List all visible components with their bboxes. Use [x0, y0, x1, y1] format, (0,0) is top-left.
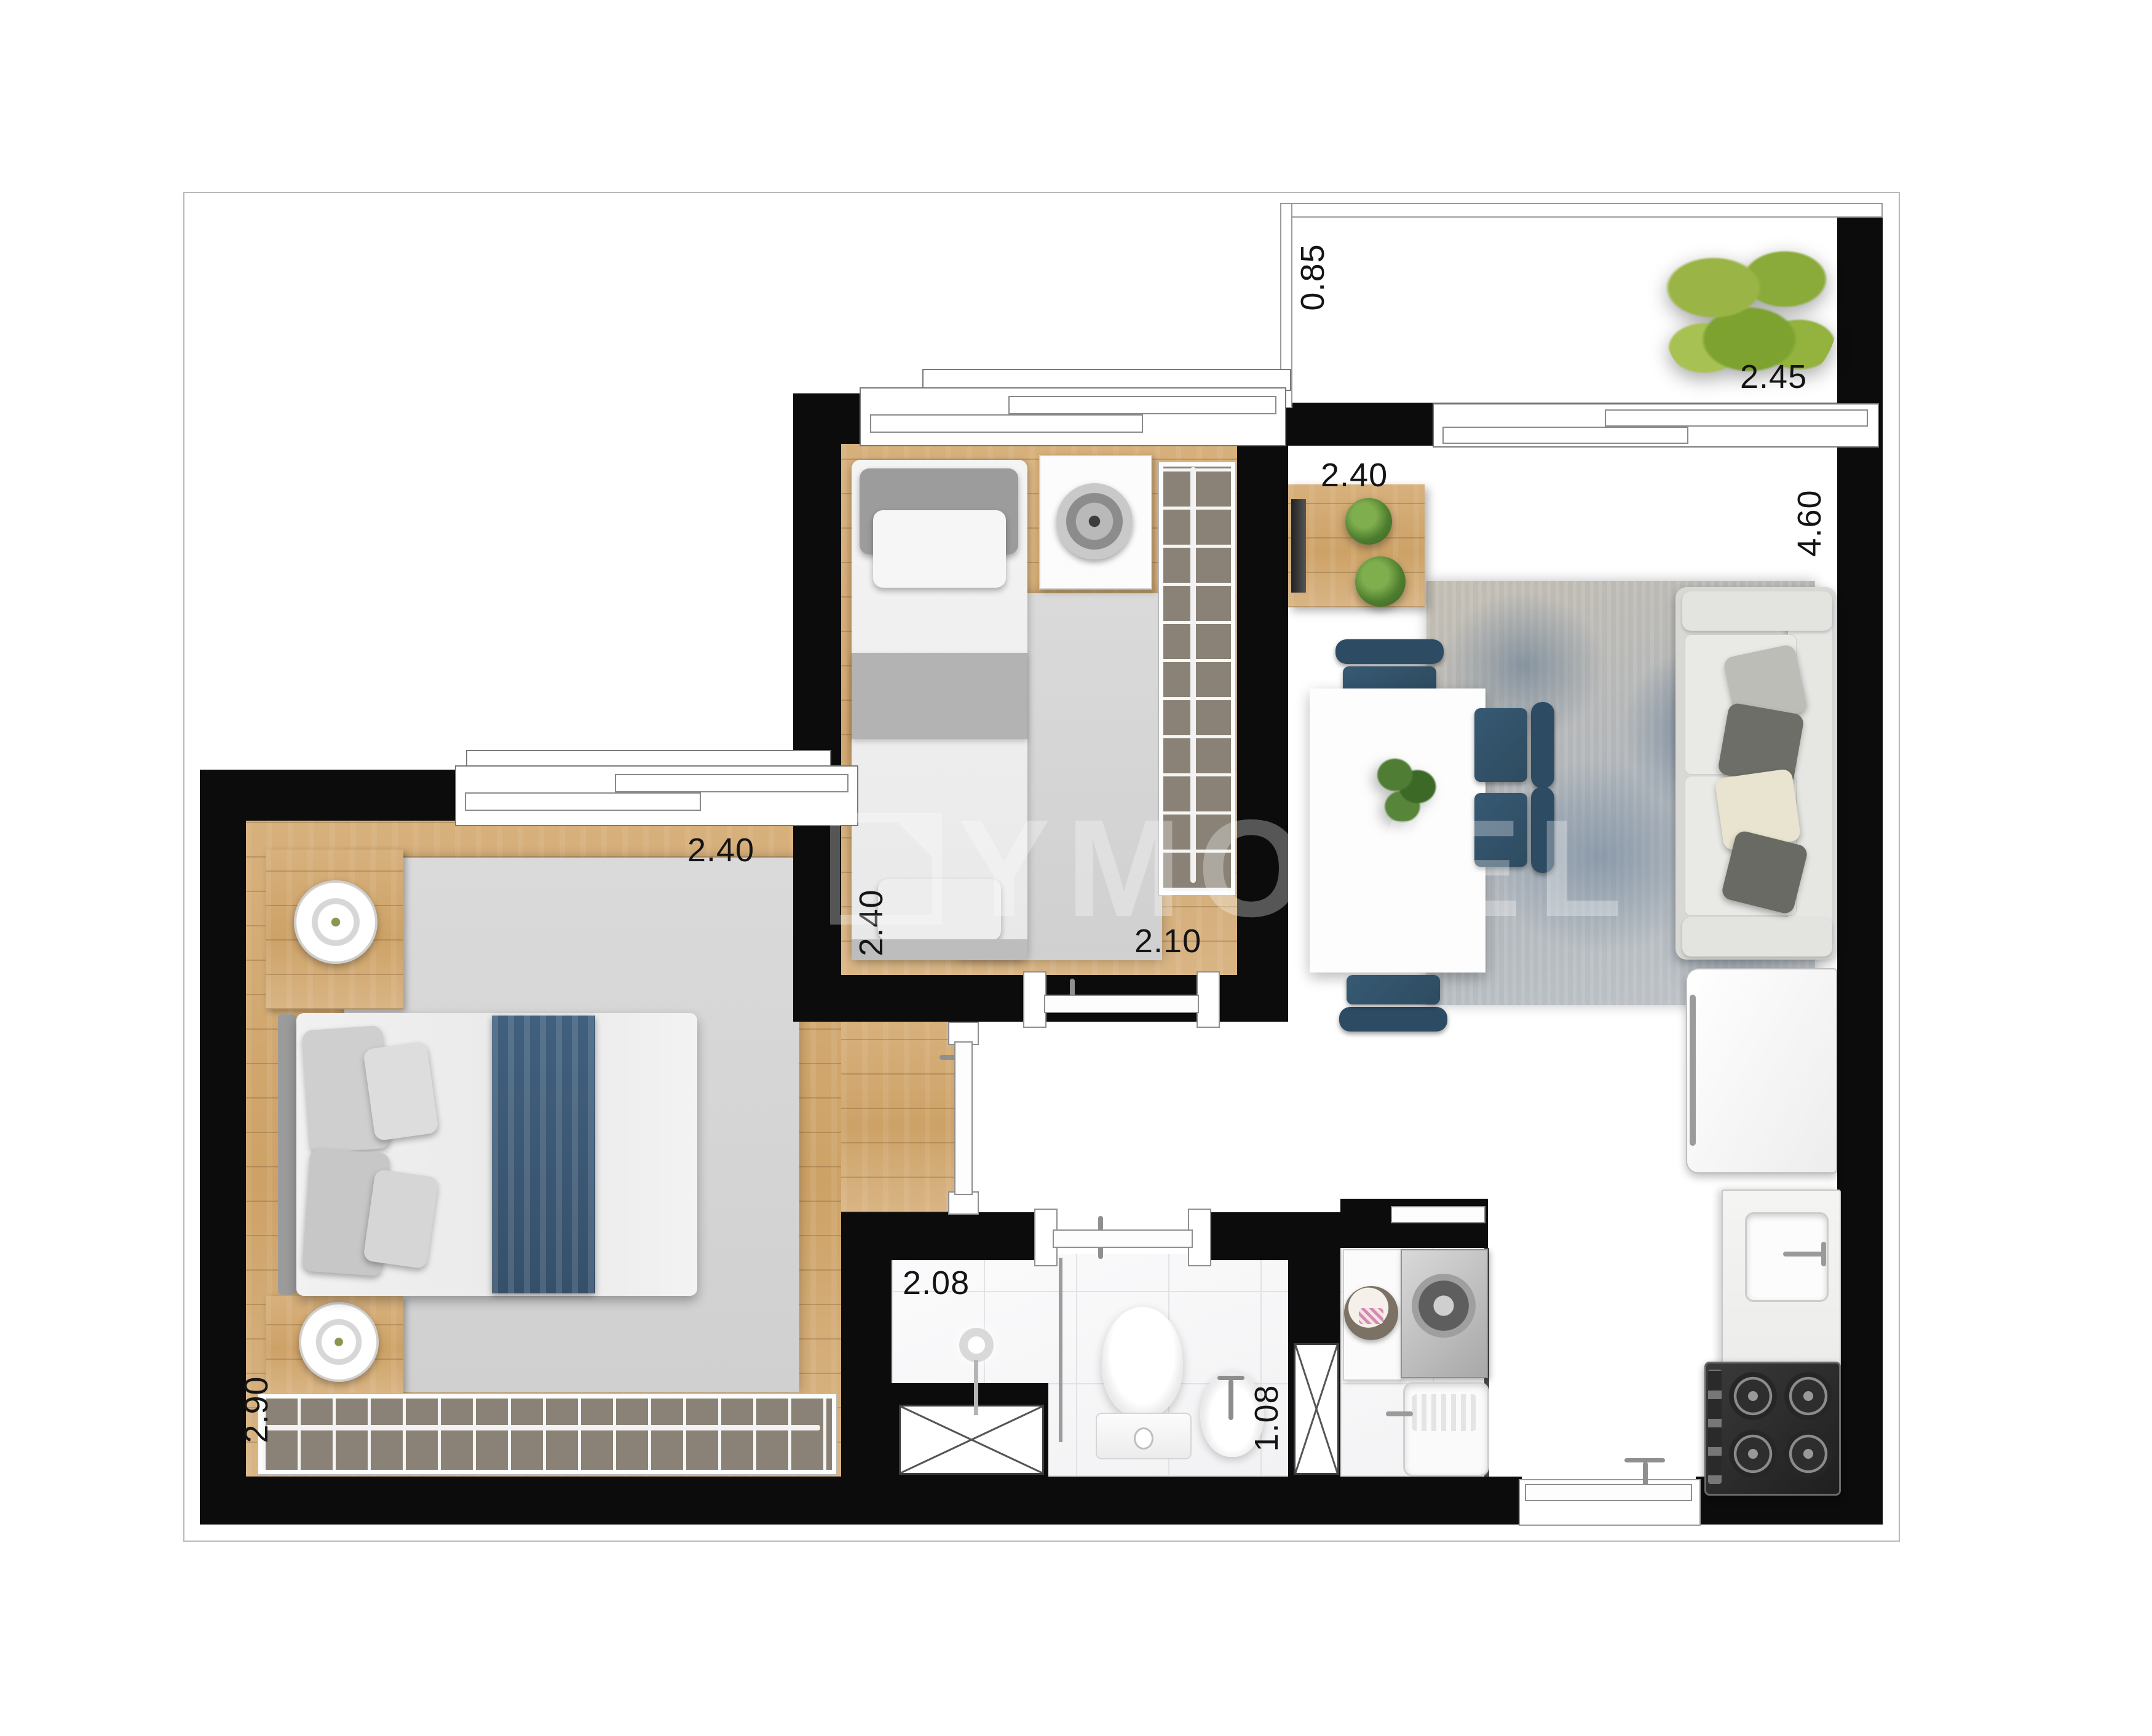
- washing-machine-drum: [1412, 1274, 1476, 1338]
- kitchen-sink: [1745, 1212, 1829, 1302]
- shaft-duct-bathroom: [899, 1405, 1044, 1475]
- master-door: [954, 1041, 973, 1195]
- refrigerator-handle: [1690, 995, 1696, 1146]
- bedroom2-closet-rod: [1190, 467, 1196, 883]
- stove-burner: [1784, 1372, 1832, 1420]
- dim-balcony-depth: 0.85: [1294, 237, 1332, 317]
- bedroom2-pillow-white: [873, 510, 1006, 588]
- balcony-sliding-door: [1433, 403, 1879, 448]
- master-closet-rod: [266, 1425, 820, 1430]
- stove-burner: [1729, 1372, 1777, 1420]
- master-lamp: [294, 880, 378, 964]
- master-window: [455, 765, 858, 826]
- master-window-pane: [465, 792, 701, 811]
- laundry-faucet: [1386, 1411, 1413, 1416]
- bathroom-faucet: [1228, 1379, 1233, 1420]
- bedroom2-closet: [1159, 462, 1235, 895]
- bedroom2-window-pane: [870, 414, 1143, 433]
- dim-master-width: 2.40: [687, 831, 754, 869]
- wall-entry-left-stub: [1488, 1477, 1522, 1525]
- dim-master-closet: 2.90: [237, 1370, 275, 1450]
- shower-glass-divider: [1059, 1258, 1062, 1442]
- master-headboard: [278, 1014, 296, 1295]
- laundry-door: [1391, 1206, 1485, 1223]
- wall-bedroom2-left: [793, 393, 841, 1022]
- bedroom2-foot-pillow: [878, 879, 1001, 941]
- master-pillow-small: [363, 1169, 439, 1269]
- stove-burner: [1784, 1430, 1832, 1478]
- dining-table-plant: [1369, 751, 1444, 830]
- dining-chair: [1347, 975, 1440, 1004]
- shaft-duct-laundry: [1294, 1343, 1339, 1475]
- dining-chair: [1474, 793, 1527, 867]
- tv-screen: [1291, 499, 1306, 593]
- toilet-bowl: [1102, 1307, 1183, 1418]
- kitchen-faucet: [1783, 1252, 1826, 1257]
- laundry-basket-clothes: [1359, 1308, 1383, 1324]
- hall-floor: [957, 1022, 1289, 1213]
- dim-bathroom-length: 2.08: [903, 1264, 970, 1302]
- door-jamb: [1023, 971, 1046, 1028]
- toilet-flush-button: [1134, 1427, 1153, 1450]
- bedroom2-lamp: [1056, 483, 1133, 559]
- sideboard-plant: [1355, 556, 1406, 607]
- floorplan-page: { "watermark": { "text": "YMOVEL" }, "di…: [0, 0, 2152, 1736]
- stove-burner: [1729, 1430, 1777, 1478]
- dim-bedroom2-length: 2.10: [1134, 922, 1201, 960]
- bathroom-door: [1053, 1229, 1193, 1248]
- wall-master-bath-divider: [841, 1212, 892, 1477]
- master-entry-nook-floor: [841, 1022, 957, 1212]
- master-bed-runner: [492, 1016, 595, 1293]
- bedroom2-window: [860, 387, 1286, 446]
- refrigerator: [1686, 968, 1837, 1174]
- shower-head: [959, 1328, 994, 1362]
- sofa-armrest: [1682, 591, 1832, 631]
- dining-table: [1310, 688, 1485, 973]
- bathroom-faucet-handle: [1217, 1376, 1244, 1380]
- balcony-door-pane: [1442, 427, 1688, 444]
- dim-living-length: 4.60: [1790, 483, 1829, 563]
- dining-chair-back: [1335, 639, 1444, 664]
- bedroom2-door: [1044, 995, 1199, 1013]
- wall-bath-top-right: [1200, 1212, 1288, 1260]
- entry-door-handle-bar: [1624, 1458, 1665, 1462]
- kitchen-faucet-handle: [1821, 1242, 1826, 1266]
- stove-knobs: [1708, 1370, 1722, 1484]
- dim-living-width: 2.40: [1321, 456, 1388, 494]
- wall-bottom-left: [200, 1477, 1522, 1525]
- master-closet: [258, 1394, 836, 1474]
- dining-chair: [1474, 708, 1527, 782]
- laundry-tank-ribs: [1412, 1394, 1477, 1431]
- bedroom2-blanket-fold: [852, 653, 1027, 739]
- dim-bathroom-width: 1.08: [1248, 1378, 1286, 1458]
- master-pillow-small: [363, 1041, 439, 1141]
- dim-bedroom2-width: 2.40: [852, 883, 890, 963]
- sofa-armrest: [1682, 917, 1832, 957]
- balcony-railing-top: [1280, 203, 1883, 218]
- bedroom2-window-pane: [1008, 396, 1276, 414]
- dining-chair-back: [1531, 702, 1554, 788]
- wall-bedroom2-living: [1237, 441, 1288, 1022]
- shower-head-arm: [974, 1360, 978, 1415]
- dim-balcony-width: 2.45: [1740, 358, 1807, 396]
- door-jamb: [1197, 971, 1220, 1028]
- entry-door: [1525, 1484, 1692, 1501]
- master-window-pane: [615, 774, 849, 792]
- balcony-door-pane: [1605, 409, 1868, 427]
- dining-chair-back: [1531, 787, 1554, 873]
- dining-chair-back: [1339, 1007, 1447, 1032]
- master-lamp: [299, 1302, 379, 1382]
- sideboard-plant: [1345, 498, 1392, 545]
